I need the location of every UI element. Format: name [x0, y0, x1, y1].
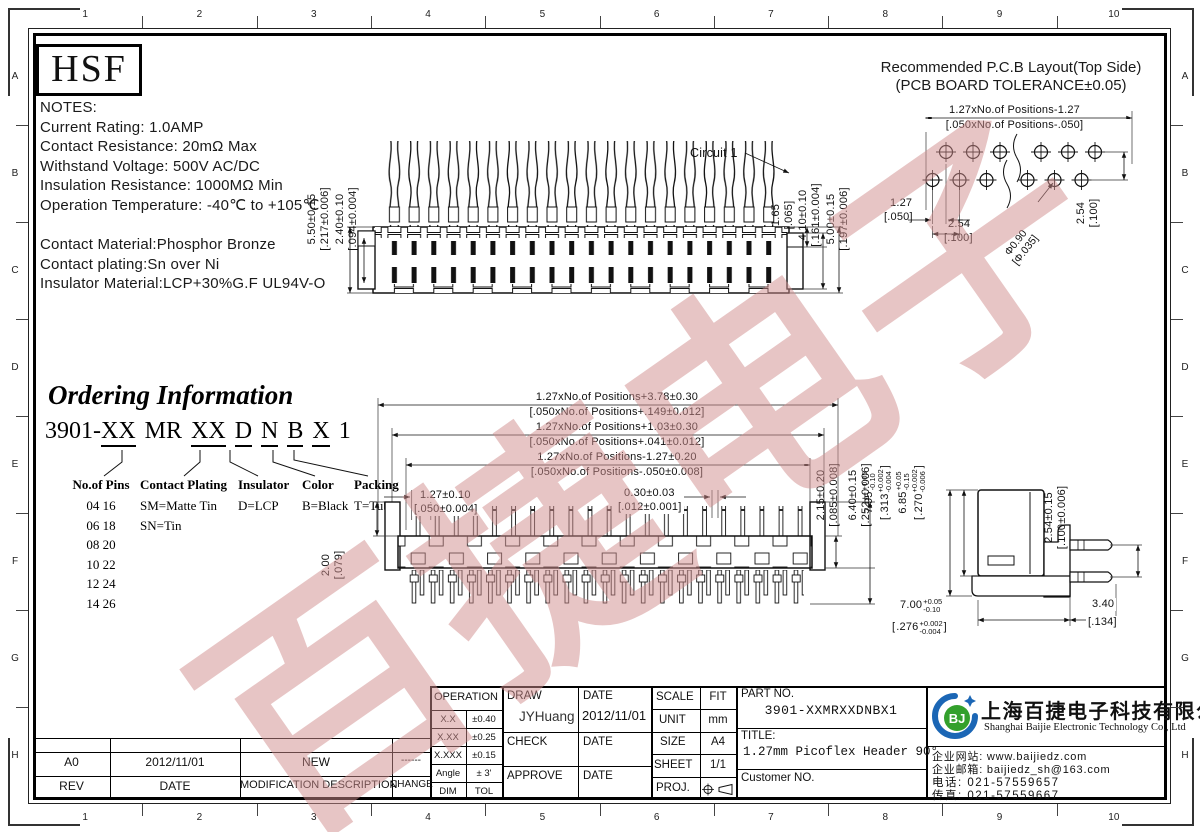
ruler-tick [1057, 804, 1058, 816]
svg-text:BJ: BJ [949, 711, 966, 726]
ruler-tick [714, 16, 715, 28]
sideview-tail-dim-mm: 3.40 [1090, 598, 1116, 611]
rev-header: CHANGE [390, 779, 432, 790]
title-block: OPERATION X.X ±0.40 X.XX ±0.25 X.XXX ±0.… [33, 686, 1167, 800]
rev-header: MODIFICATION DESCRIPTION [240, 779, 392, 791]
company-name-en: Shanghai Baijie Electronic Technology Co… [984, 722, 1186, 733]
topview-body-height-dim: 2.40±0.10 [.094±0.004] [334, 173, 359, 265]
ruler-number-bottom: 6 [651, 812, 663, 823]
size-value: A4 [700, 736, 736, 748]
note-line: Current Rating: 1.0AMP [40, 118, 325, 138]
material-line: Contact plating:Sn over Ni [40, 255, 325, 275]
midview-w2-dim-mm: 1.27xNo.of Positions+1.03±0.30 [425, 421, 809, 434]
ruler-tick [16, 319, 28, 320]
ruler-number-top: 7 [765, 9, 777, 20]
customer-no-label: Customer NO. [741, 772, 815, 784]
ruler-tick [1057, 16, 1058, 28]
midview-w2-dim-in: [.050xNo.of Positions+.041±0.012] [425, 436, 809, 449]
midview-pin-dim-mm: 0.30±0.03 [622, 487, 677, 500]
ruler-number-top: 2 [193, 9, 205, 20]
topview-total-height-dim: 5.50±0.15 [.217±0.006] [306, 173, 331, 265]
ordering-part-number: 3901-XXMRXXDNBX1 [45, 418, 351, 445]
ruler-letter-right: C [1179, 265, 1191, 276]
ruler-letter-right: E [1179, 459, 1191, 470]
ruler-letter-right: B [1179, 168, 1191, 179]
date-label: DATE [583, 690, 613, 702]
ruler-tick [942, 16, 943, 28]
pcb-pitch-dim-in: [.050] [884, 211, 913, 224]
ruler-letter-left: G [9, 653, 21, 664]
topview-d1-dim: 1.65 [.065] [770, 187, 795, 243]
note-line: Withstand Voltage: 500V AC/DC [40, 157, 325, 177]
rev-date: 2012/11/01 [110, 755, 240, 769]
pcb-layout-title: Recommended P.C.B Layout(Top Side) (PCB … [850, 59, 1172, 95]
sheet-label: SHEET [654, 759, 692, 771]
ruler-tick [1171, 319, 1183, 320]
ruler-tick [371, 16, 372, 28]
part-no-label: PART NO. [741, 688, 794, 700]
ruler-number-top: 5 [536, 9, 548, 20]
ruler-tick [371, 804, 372, 816]
rev-header: DATE [110, 779, 240, 793]
tol-row: DIM [430, 786, 466, 797]
ruler-number-top: 6 [651, 9, 663, 20]
ruler-number-top: 1 [79, 9, 91, 20]
ruler-number-top: 4 [422, 9, 434, 20]
ruler-letter-left: D [9, 362, 21, 373]
circuit1-label: Circuit 1 [690, 146, 738, 161]
pcb-pitch-dim-mm: 1.27 [890, 197, 912, 210]
midview-tab-dim: 2.00 [.079] [320, 542, 345, 588]
scale-label: SCALE [656, 691, 694, 703]
ruler-number-bottom: 7 [765, 812, 777, 823]
ruler-number-bottom: 4 [422, 812, 434, 823]
tol-row: X.X [430, 714, 466, 725]
ruler-number-bottom: 1 [79, 812, 91, 823]
midview-w3-dim-in: [.050xNo.of Positions-.050±0.008] [425, 466, 809, 479]
midview-pin-dim-in: [.012±0.001] [616, 501, 684, 514]
midview-pitch-dim-in: [.050±0.004] [412, 503, 480, 516]
company-logo-icon: BJ [932, 693, 978, 739]
unit-value: mm [700, 714, 736, 726]
topview-d2-dim: 4.10±0.10 [.161±0.004] [797, 169, 822, 261]
ruler-tick [1171, 707, 1183, 708]
check-label: CHECK [507, 736, 547, 748]
sideview-pitch-dim: 2.54±0.15 [.100±0.006] [1043, 470, 1068, 565]
note-line: Insulation Resistance: 1000MΩ Min [40, 176, 325, 196]
ruler-number-top: 3 [308, 9, 320, 20]
ruler-number-top: 9 [994, 9, 1006, 20]
sideview-depth-dim-in: .276+0.002-0.004 [890, 620, 949, 636]
ruler-letter-left: F [9, 556, 21, 567]
ruler-tick [600, 16, 601, 28]
ruler-tick [600, 804, 601, 816]
ruler-tick [485, 804, 486, 816]
pcb-row-dim: 2.54 [.100] [1075, 187, 1100, 239]
sideview-h2-dim: 6.85+0.05-0.15 .270+0.002-0.006 [895, 445, 927, 540]
ruler-number-bottom: 9 [994, 812, 1006, 823]
ruler-letter-left: A [9, 71, 21, 82]
date-label: DATE [583, 770, 613, 782]
sheet-value: 1/1 [700, 759, 736, 771]
ruler-tick [257, 16, 258, 28]
ruler-tick [257, 804, 258, 816]
proj-label: PROJ. [656, 782, 690, 794]
rev-value: A0 [33, 755, 110, 769]
draw-label: DRAW [507, 690, 542, 702]
ruler-tick [1171, 610, 1183, 611]
ordering-col-plating: Contact Plating SM=Matte Tin SN=Tin [140, 477, 230, 613]
ruler-tick [16, 416, 28, 417]
notes-block: NOTES: Current Rating: 1.0AMP Contact Re… [40, 98, 325, 294]
title-label: TITLE: [741, 730, 776, 742]
ruler-tick [1171, 513, 1183, 514]
ruler-letter-right: G [1179, 653, 1191, 664]
ruler-number-bottom: 2 [193, 812, 205, 823]
sideview-depth-dim-mm: 7.00+0.05-0.10 [898, 598, 944, 614]
draw-date: 2012/11/01 [582, 708, 646, 723]
tol-row: Angle [430, 768, 466, 779]
midview-w1-dim-in: [.050xNo.of Positions+.149±0.012] [425, 406, 809, 419]
ruler-tick [16, 125, 28, 126]
ruler-letter-left: H [9, 750, 21, 761]
rev-change: ------ [392, 755, 430, 766]
projection-symbol-icon [701, 783, 735, 796]
part-no-value: 3901-XXMRXXDNBX1 [736, 703, 926, 718]
ruler-tick [16, 222, 28, 223]
unit-label: UNIT [659, 714, 686, 726]
ruler-tick [16, 513, 28, 514]
ruler-number-top: 8 [879, 9, 891, 20]
hsf-logo: HSF [36, 44, 142, 96]
midview-pitch-dim-mm: 1.27±0.10 [418, 489, 473, 502]
topview-d3-dim: 5.00±0.15 [.197±0.006] [825, 173, 850, 265]
ruler-tick [828, 16, 829, 28]
ruler-letter-left: B [9, 168, 21, 179]
ruler-number-bottom: 8 [879, 812, 891, 823]
approve-label: APPROVE [507, 770, 563, 782]
ruler-tick [1171, 222, 1183, 223]
material-line: Contact Material:Phosphor Bronze [40, 235, 325, 255]
ruler-letter-right: A [1179, 71, 1191, 82]
tol-row: X.XX [430, 732, 466, 743]
size-label: SIZE [660, 736, 686, 748]
tol-row: X.XXX [430, 750, 466, 761]
tol-header: OPERATION [430, 691, 502, 703]
ruler-number-bottom: 3 [308, 812, 320, 823]
ruler-tick [485, 16, 486, 28]
scale-value: FIT [700, 691, 736, 703]
ruler-tick [142, 16, 143, 28]
midview-w3-dim-mm: 1.27xNo.of Positions-1.27±0.20 [425, 451, 809, 464]
midview-w1-dim-mm: 1.27xNo.of Positions+3.78±0.30 [425, 391, 809, 404]
pcb-pitch2-dim-in: [.100] [944, 232, 973, 245]
ruler-letter-left: E [9, 459, 21, 470]
ordering-col-pins: No.of Pins 04 16 06 18 08 20 10 22 12 24… [70, 477, 132, 613]
ruler-letter-left: C [9, 265, 21, 276]
ruler-letter-right: F [1179, 556, 1191, 567]
sideview-tail-dim-in: [.134] [1086, 616, 1119, 629]
material-line: Insulator Material:LCP+30%G.F UL94V-O [40, 274, 325, 294]
ruler-tick [828, 804, 829, 816]
ordering-title: Ordering Information [48, 380, 293, 411]
note-line: Contact Resistance: 20mΩ Max [40, 137, 325, 157]
ordering-leader-lines [55, 448, 385, 480]
ruler-tick [16, 707, 28, 708]
pcb-span-dim-mm: 1.27xNo.of Positions-1.27 [905, 104, 1124, 117]
rev-desc: NEW [240, 755, 392, 769]
sideview-h1-dim: 7.95+0.05-0.10 .313+0.002-0.004 [861, 445, 893, 540]
ruler-letter-right: H [1179, 750, 1191, 761]
ruler-tick [142, 804, 143, 816]
ruler-number-top: 10 [1108, 9, 1120, 20]
drawing-sheet: HSF NOTES: Current Rating: 1.0AMP Contac… [0, 0, 1200, 832]
ordering-table: No.of Pins 04 16 06 18 08 20 10 22 12 24… [70, 477, 404, 613]
rev-header: REV [33, 779, 110, 793]
notes-title: NOTES: [40, 98, 325, 118]
ruler-tick [714, 804, 715, 816]
ruler-tick [1171, 125, 1183, 126]
ruler-number-bottom: 10 [1108, 812, 1120, 823]
ruler-tick [1171, 416, 1183, 417]
ruler-tick [16, 610, 28, 611]
date-label: DATE [583, 736, 613, 748]
note-line: Operation Temperature: -40℃ to +105℃ [40, 196, 325, 216]
ruler-number-bottom: 5 [536, 812, 548, 823]
ordering-col-insulator: Insulator D=LCP [238, 477, 294, 613]
company-fax: 传真: 021-57559667 [932, 787, 1060, 803]
company-name-cn: 上海百捷电子科技有限公司 [981, 695, 1200, 724]
ruler-letter-right: D [1179, 362, 1191, 373]
title-value: 1.27mm Picoflex Header 90° [743, 745, 938, 759]
pcb-pitch2-dim-mm: 2.54 [948, 218, 970, 231]
midview-h1-dim: 2.15±0.20 [.085±0.008] [815, 450, 840, 540]
ruler-tick [942, 804, 943, 816]
pcb-span-dim-in: [.050xNo.of Positions-.050] [900, 119, 1129, 132]
draw-name: JYHuang [519, 709, 575, 724]
